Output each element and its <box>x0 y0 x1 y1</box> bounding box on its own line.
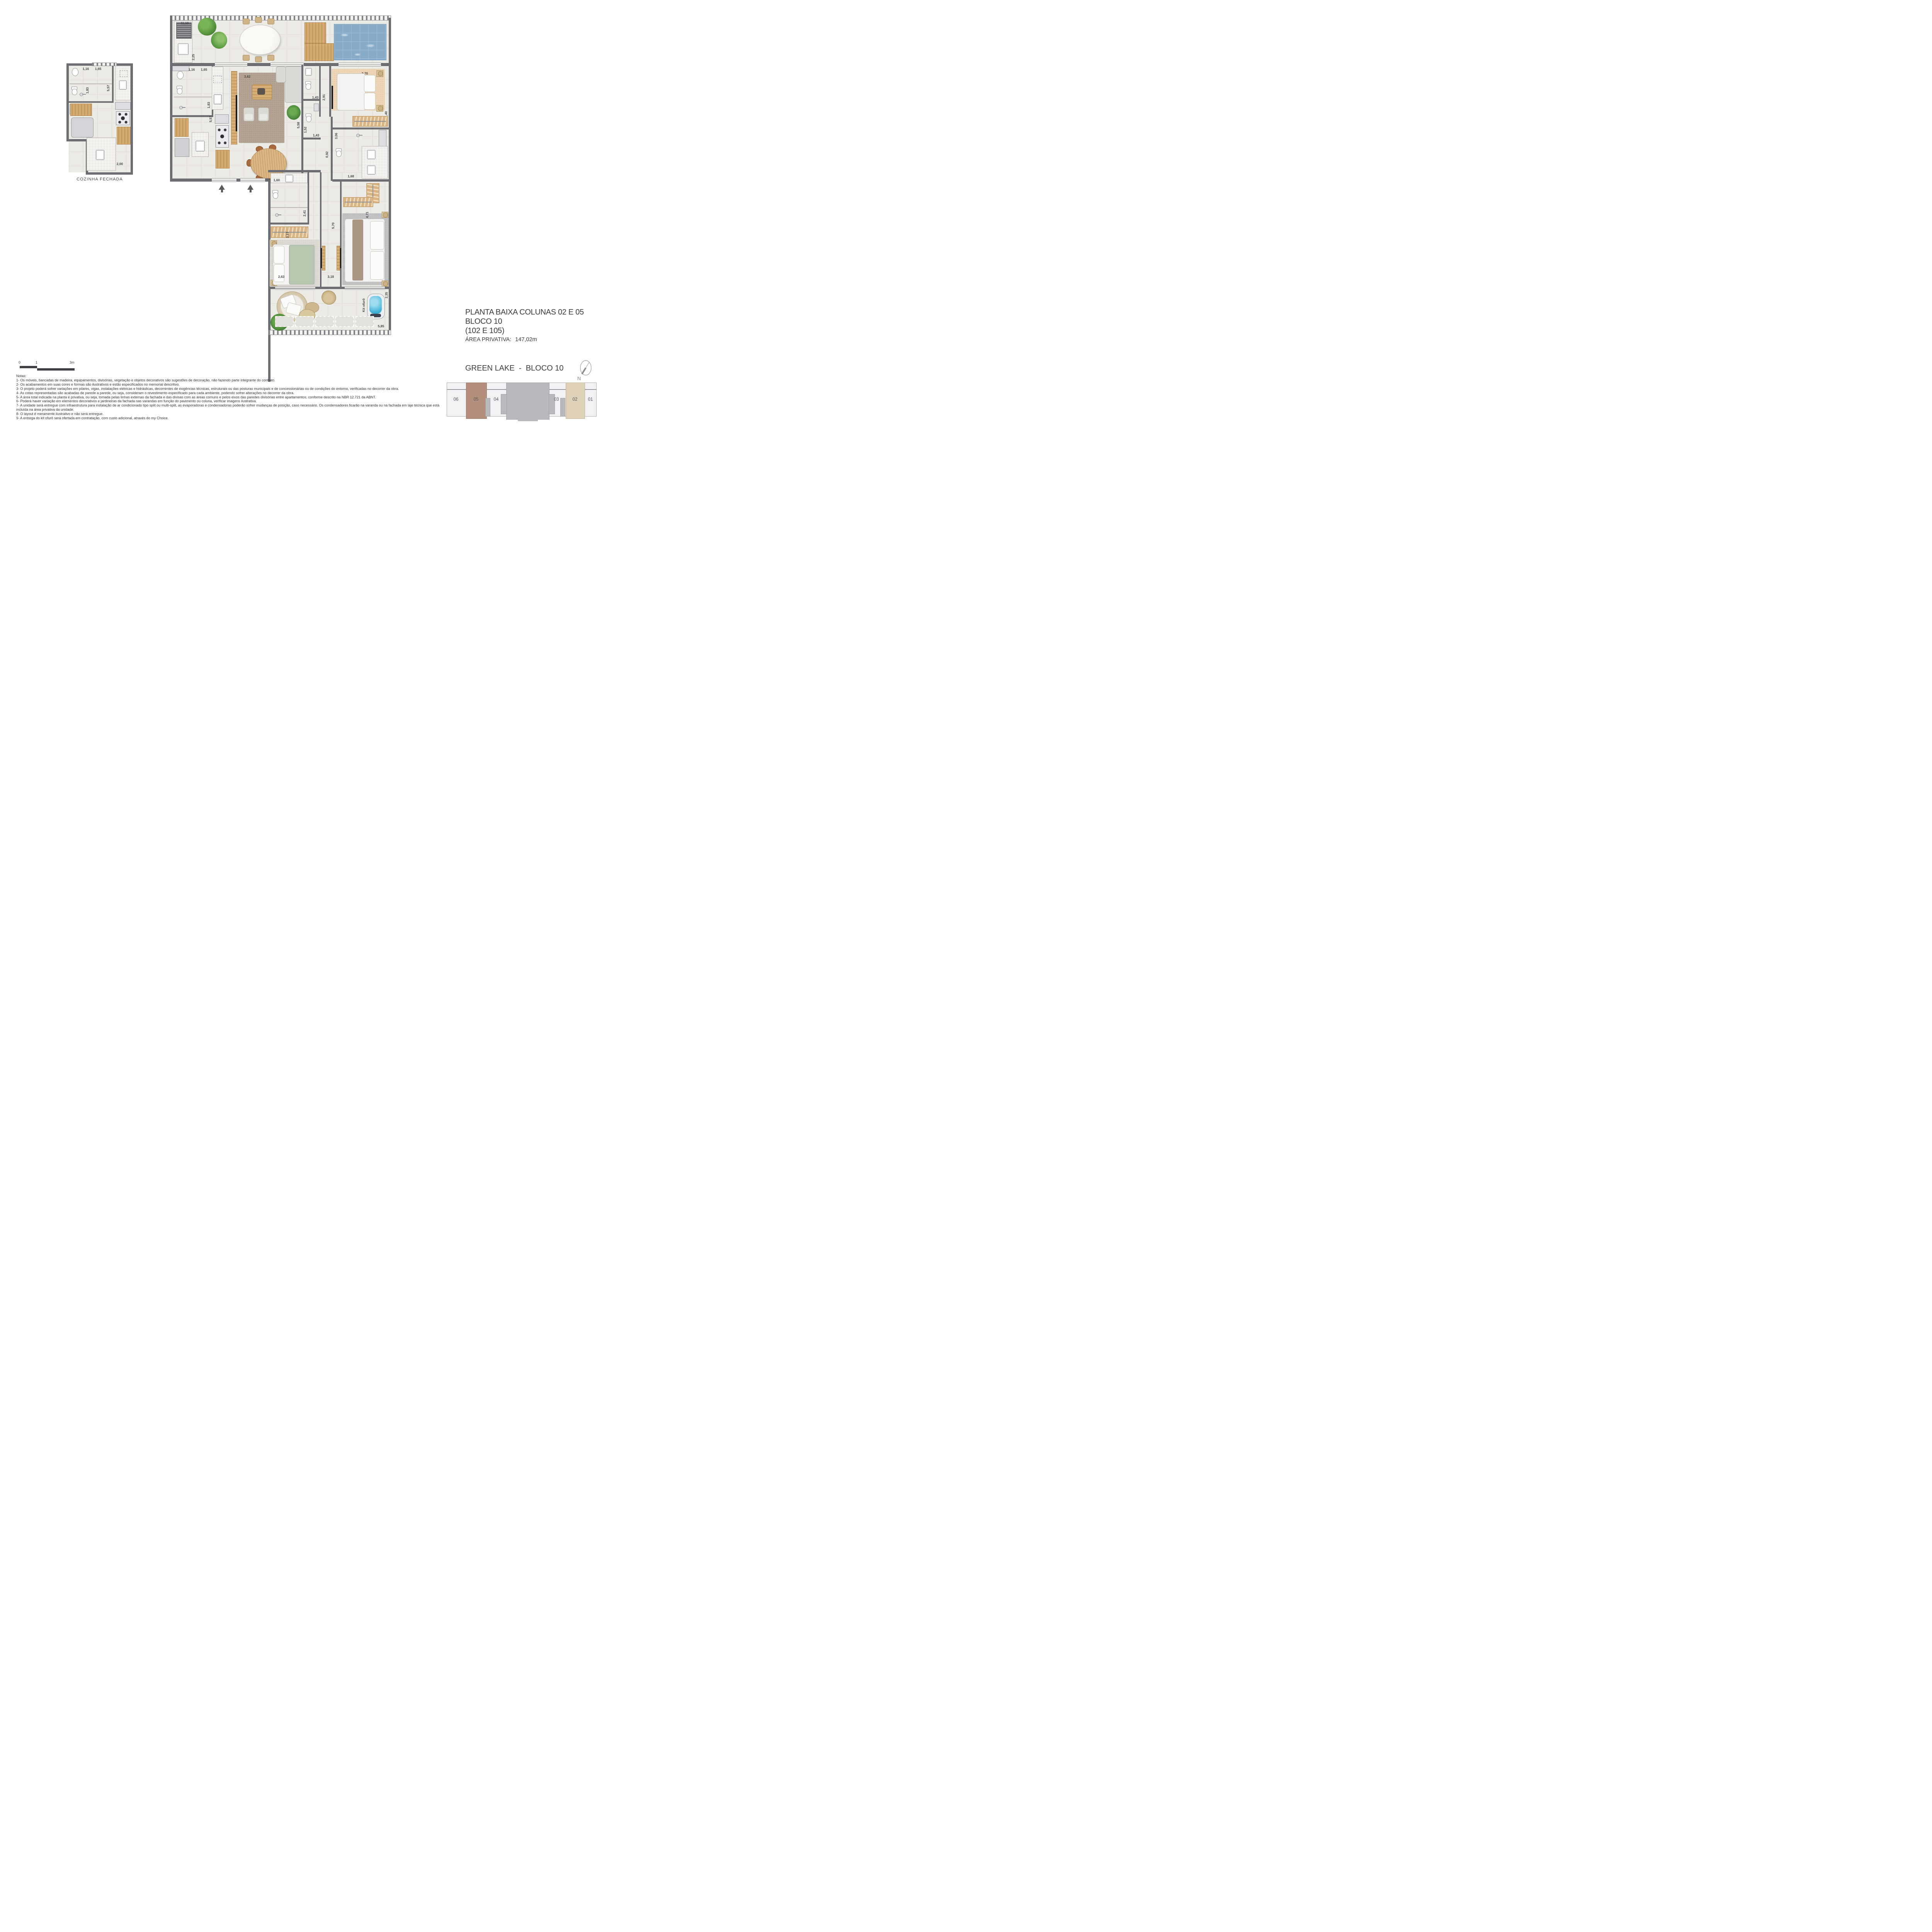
keyplan-unit-02: 02 <box>573 397 578 402</box>
pillow <box>364 93 376 110</box>
area-line: ÁREA PRIVATIVA: 147,02m <box>465 337 584 343</box>
wall-segment <box>320 172 321 288</box>
north-compass: N <box>577 359 594 383</box>
floor-marker <box>335 316 354 327</box>
pillow <box>364 75 376 92</box>
dim-label: 5,58 <box>296 122 300 129</box>
armchair-icon <box>243 107 254 121</box>
pillow <box>370 251 384 280</box>
dim-label: 11,10 <box>181 21 189 25</box>
shower-icon <box>356 134 360 137</box>
low-cabinet <box>215 114 229 124</box>
wall-segment <box>301 65 303 181</box>
chair-icon <box>255 17 262 23</box>
chair-icon <box>267 55 274 61</box>
keyplan-tab <box>518 419 538 421</box>
dim-label: 3,17 <box>286 232 289 238</box>
sofa-icon <box>285 66 303 103</box>
dim-label: 1,16 <box>83 67 89 71</box>
sink <box>96 150 104 160</box>
dim-label: 5,85 <box>378 324 384 328</box>
note-item: 5- A área total indicada na planta é pri… <box>16 395 444 400</box>
project-name: GREEN LAKE - BLOCO 10 <box>465 364 564 373</box>
washer-icon <box>175 138 189 157</box>
note-item: 7- A unidade será entregue com infraestr… <box>16 403 444 412</box>
dim-label: 1,52 <box>303 127 307 133</box>
area-value: 147,02m <box>515 337 537 343</box>
sliding-door-sill <box>215 63 247 66</box>
wall-segment <box>112 66 114 103</box>
north-label: N <box>577 376 581 381</box>
title-block: PLANTA BAIXA COLUNAS 02 E 05 BLOCO 10 (1… <box>465 308 584 343</box>
dim-label: 5,57 <box>209 116 213 122</box>
deck <box>304 43 334 61</box>
compass-icon <box>577 359 594 377</box>
note-item: 3- O projeto poderá sofrer variações em … <box>16 387 444 391</box>
tv-icon <box>340 248 341 268</box>
dim-label: 2,25 <box>191 54 195 61</box>
entry-door-sill <box>212 178 236 182</box>
toilet-icon <box>335 148 341 156</box>
lamp-icon <box>383 281 388 286</box>
keyplan-unit-06: 06 <box>454 397 459 402</box>
wall-segment <box>331 117 333 181</box>
dim-label: 1,60 <box>274 178 280 182</box>
armchair-icon <box>258 107 269 121</box>
wall-segment <box>319 65 321 117</box>
bed-duvet <box>337 73 366 111</box>
entry-arrow-stem <box>250 190 252 192</box>
dim-label: 2,35 <box>384 292 388 299</box>
lavabo-sink <box>305 68 312 76</box>
bath-sink <box>285 175 293 182</box>
chair-icon <box>255 56 262 62</box>
lamp-icon <box>383 213 388 218</box>
note-item: 9- A entrega do kit ofurô será ofertada … <box>16 416 444 420</box>
wall-segment <box>69 101 114 103</box>
kitchen-sink <box>214 94 222 104</box>
keyplan-core <box>506 383 549 420</box>
dim-label: 1,83 <box>207 102 211 109</box>
wood-cabinet <box>175 118 189 137</box>
pillow <box>370 221 384 250</box>
sliding-door-sill <box>270 63 304 66</box>
plant-icon <box>287 105 301 120</box>
pillow <box>274 246 284 264</box>
dim-label: 4,71 <box>365 212 369 218</box>
appliance-dashed <box>120 70 128 77</box>
note-item: 6- Poderá haver variação em elementos de… <box>16 399 444 403</box>
wall-segment <box>131 63 133 175</box>
dim-label: 2,63 <box>278 275 285 279</box>
dim-label: 1,43 <box>312 95 319 99</box>
wall-segment <box>389 18 391 335</box>
toilet-icon <box>176 86 182 94</box>
shower-icon <box>179 106 183 109</box>
keyplan-notch <box>560 398 565 417</box>
wall-segment <box>170 15 172 182</box>
floor-marker <box>355 316 374 327</box>
toilet-icon <box>305 114 311 122</box>
stove-icon <box>116 111 130 125</box>
wood-board <box>117 127 131 145</box>
dim-label: 1,43 <box>313 133 320 137</box>
wood-board <box>216 150 230 168</box>
dim-label: 1,16 <box>189 68 195 71</box>
plant-icon <box>211 32 227 49</box>
chair-icon <box>243 55 250 61</box>
tv-console <box>337 246 340 270</box>
laundry-sink <box>196 141 205 151</box>
bottom-window-hatch <box>268 330 391 335</box>
dim-label: 3,18 <box>328 275 334 279</box>
wall-segment <box>268 170 321 172</box>
entry-door-sill <box>240 178 265 182</box>
keyplan-unit-04: 04 <box>494 397 499 402</box>
tv-icon <box>236 95 237 131</box>
scale-seg2 <box>37 368 75 371</box>
closet-l-horizontal <box>343 197 373 207</box>
window-sill <box>338 63 381 66</box>
keyplan-unit-03: 03 <box>554 397 559 402</box>
floor-marker <box>295 316 314 327</box>
wall-segment <box>86 172 133 175</box>
keyplan-unit-05: 05 <box>474 397 479 402</box>
floor-marker <box>275 316 294 327</box>
suite-closet <box>352 116 388 127</box>
scale-3m: 3m <box>70 361 75 364</box>
oval-marble-table <box>240 25 281 55</box>
appliance-dashed <box>213 76 222 83</box>
dim-label: 5,70 <box>331 223 335 229</box>
note-item: 4- As cotas representadas são acabadas d… <box>16 391 444 395</box>
entry-arrow <box>247 185 253 190</box>
low-cabinet <box>115 102 131 110</box>
kit-ofuro-label: Kit ofurô <box>362 298 366 312</box>
mini-plan-caption: COZINHA FECHADA <box>66 177 134 182</box>
dim-label: 2,91 <box>322 94 326 101</box>
title-line3: (102 E 105) <box>465 326 584 335</box>
tv-console <box>322 246 325 270</box>
dim-label: 1,83 <box>85 87 89 94</box>
pillow <box>274 264 284 282</box>
ofuro-water <box>369 296 382 314</box>
divider <box>70 83 112 84</box>
dim-label: 5,57 <box>106 85 110 92</box>
wall-segment <box>331 128 389 129</box>
title-line2: BLOCO 10 <box>465 317 584 326</box>
dim-label: 1,68 <box>348 174 354 178</box>
window-sill <box>275 286 315 290</box>
divider <box>270 207 308 208</box>
toilet-icon <box>71 87 77 95</box>
green-duvet <box>289 245 315 284</box>
shelf <box>314 104 319 111</box>
note-item: 1- Os móveis, bancadas de madeira, equip… <box>16 378 444 383</box>
wall-segment <box>329 65 331 117</box>
chair-icon <box>267 19 274 24</box>
shower-icon <box>80 93 83 96</box>
scale-1: 1 <box>36 361 37 364</box>
floor-marker <box>315 316 334 327</box>
area-label: ÁREA PRIVATIVA: <box>465 337 511 343</box>
toilet-icon <box>305 81 311 89</box>
closet <box>270 226 308 238</box>
entry-arrow <box>219 185 225 190</box>
wall-segment <box>172 115 213 117</box>
scale-seg1 <box>20 366 37 368</box>
dim-label: 1,65 <box>95 67 102 71</box>
toilet-icon <box>272 190 278 198</box>
title-line1: PLANTA BAIXA COLUNAS 02 E 05 <box>465 308 584 317</box>
vanity-sink <box>367 150 376 159</box>
plant-icon <box>198 18 216 36</box>
deck <box>304 22 326 43</box>
dim-label: 2,00 <box>117 162 123 166</box>
note-item: 8- O layout é meramente ilustrativo e nã… <box>16 412 444 416</box>
wall-segment <box>302 138 321 139</box>
dim-label: 2,41 <box>303 210 306 217</box>
keyplan-notch <box>485 398 490 417</box>
note-item: 2- Os acabamentos em suas cores e formas… <box>16 383 444 387</box>
varanda-sink <box>178 43 189 55</box>
wall-segment <box>340 182 342 288</box>
divider <box>174 97 212 97</box>
lamp-icon <box>378 106 383 111</box>
throw-blanket <box>352 219 363 281</box>
dim-label: 0,92 <box>325 151 329 158</box>
bathroom-sink <box>72 68 78 76</box>
bathroom-sink <box>177 71 184 79</box>
chair-icon <box>243 19 250 24</box>
stove-icon <box>216 125 229 148</box>
dim-label: 3,62 <box>244 75 251 78</box>
floor-plan-sheet: 1,16 1,65 1,83 5,57 2,00 COZINHA FECHADA <box>0 0 597 422</box>
wall-segment <box>66 139 88 141</box>
window-sill <box>345 286 385 290</box>
entry-arrow-stem <box>221 190 223 192</box>
wall-segment <box>270 223 309 224</box>
dim-label: 1,65 <box>201 68 207 71</box>
sofa-chaise <box>276 66 286 83</box>
tv-icon <box>321 248 322 268</box>
gray-table <box>71 117 94 138</box>
wall-segment <box>308 172 309 224</box>
lamp-icon <box>378 71 383 76</box>
notes-title: Notas: <box>16 374 444 378</box>
vanity-sink <box>367 165 376 175</box>
notes-block: Notas: 1- Os móveis, bancadas de madeira… <box>16 374 444 420</box>
kitchen-sink <box>119 80 127 90</box>
tv-icon <box>332 86 333 109</box>
shower-icon <box>275 213 279 217</box>
keyplan-notch <box>501 394 507 414</box>
keyplan-unit-01: 01 <box>588 397 593 402</box>
dim-label: 3,06 <box>334 133 338 139</box>
scale-0: 0 <box>19 361 20 364</box>
pool <box>334 24 386 60</box>
wood-cabinet <box>70 104 92 116</box>
tray <box>257 88 265 95</box>
